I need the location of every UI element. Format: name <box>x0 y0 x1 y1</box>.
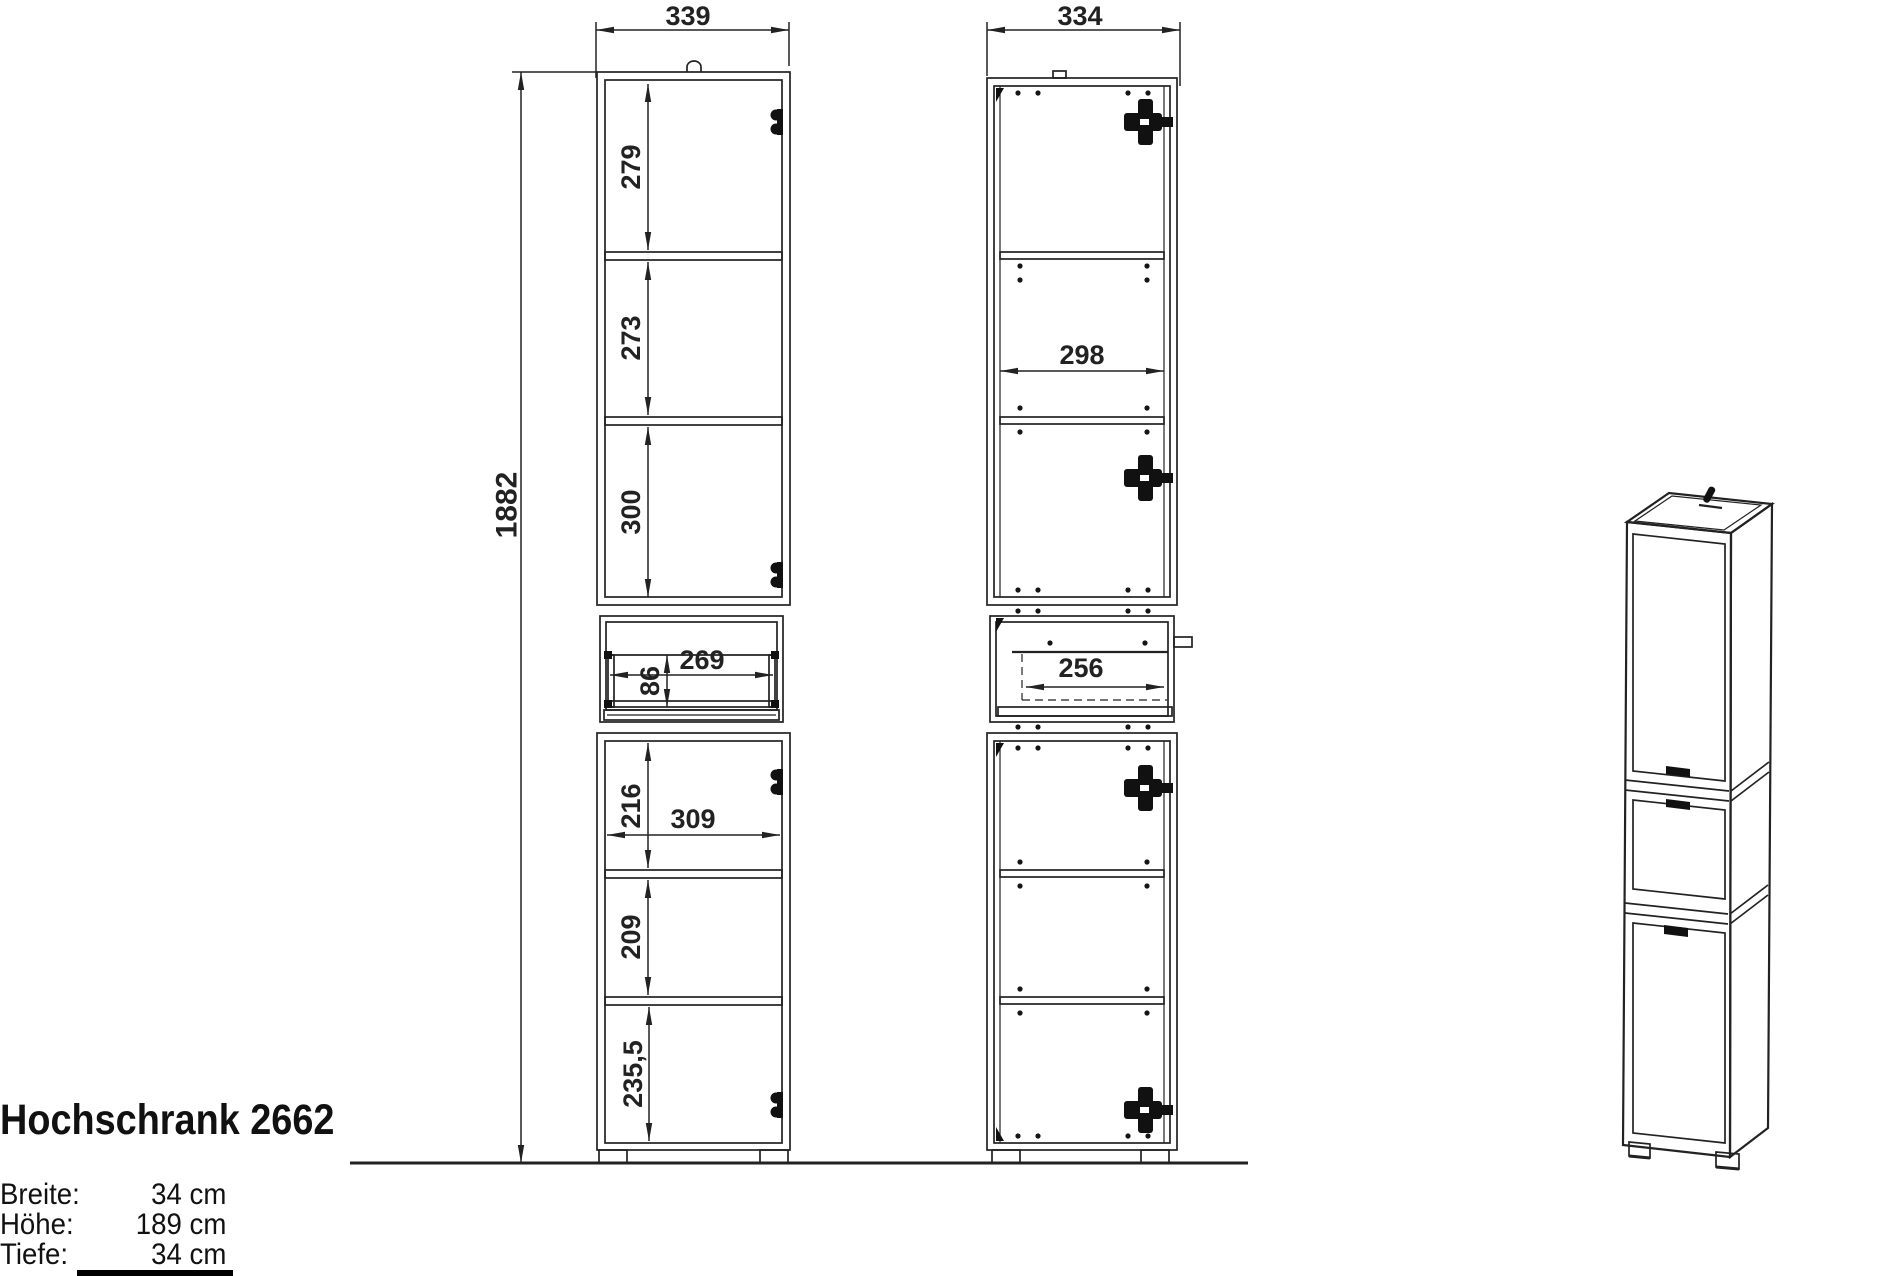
foot <box>992 1150 1020 1163</box>
view-3d-perspective <box>1623 486 1772 1169</box>
dim-lower-sec1: 216 <box>616 783 646 828</box>
top-mount-knob <box>1053 71 1066 78</box>
bottom-crop-bar <box>77 1270 233 1276</box>
dims-view-a: 339 1882 279 273 300 86 269 216 309 209 … <box>491 1 790 1163</box>
dim-side-inner-width: 298 <box>1059 340 1104 370</box>
spec-value: 34 cm <box>103 1240 226 1270</box>
dim-upper-sec2: 273 <box>616 315 646 360</box>
lower-door-handle <box>1664 925 1688 937</box>
dim-lower-sec2: 209 <box>616 914 646 959</box>
spec-row-tiefe: Tiefe: 34 cm <box>0 1240 226 1270</box>
dim-upper-sec3: 300 <box>616 489 646 534</box>
drawer-front <box>1633 800 1725 899</box>
drawer-knob <box>1174 637 1192 647</box>
dim-lower-inner-width: 309 <box>670 804 715 834</box>
view-b-side-section <box>987 71 1192 1163</box>
view-a-front-section <box>597 61 790 1163</box>
spec-label: Höhe: <box>0 1210 103 1240</box>
dim-side-width: 334 <box>1057 1 1102 31</box>
top-mount-knob <box>687 61 701 72</box>
spec-value: 189 cm <box>103 1210 226 1240</box>
dim-drawer-inner-height: 86 <box>635 666 665 696</box>
drawing-title: Hochschrank 2662 <box>0 1096 334 1145</box>
dim-front-width: 339 <box>665 1 710 31</box>
top-mount-knob <box>1702 486 1716 504</box>
upper-door <box>1633 534 1725 781</box>
spec-row-hoehe: Höhe: 189 cm <box>0 1210 226 1240</box>
specs-table: Breite: 34 cm Höhe: 189 cm Tiefe: 34 cm <box>0 1180 226 1270</box>
dim-upper-sec1: 279 <box>616 144 646 189</box>
drawer-handle <box>1666 799 1690 810</box>
foot <box>599 1150 627 1163</box>
spec-value: 34 cm <box>103 1180 226 1210</box>
technical-drawing-canvas: 339 1882 279 273 300 86 269 216 309 209 … <box>0 0 1880 1276</box>
spec-label: Breite: <box>0 1180 103 1210</box>
dim-lower-sec3: 235,5 <box>618 1040 648 1108</box>
screw-dots <box>1015 90 1150 1138</box>
spec-label: Tiefe: <box>0 1240 103 1270</box>
dim-drawer-inner-width: 269 <box>679 645 724 675</box>
foot <box>1141 1150 1169 1163</box>
foot <box>760 1150 788 1163</box>
drawing-svg: 339 1882 279 273 300 86 269 216 309 209 … <box>0 0 1880 1276</box>
spec-row-breite: Breite: 34 cm <box>0 1180 226 1210</box>
lower-door <box>1633 923 1725 1143</box>
dim-side-drawer-width: 256 <box>1058 653 1103 683</box>
dim-total-height: 1882 <box>491 472 524 539</box>
